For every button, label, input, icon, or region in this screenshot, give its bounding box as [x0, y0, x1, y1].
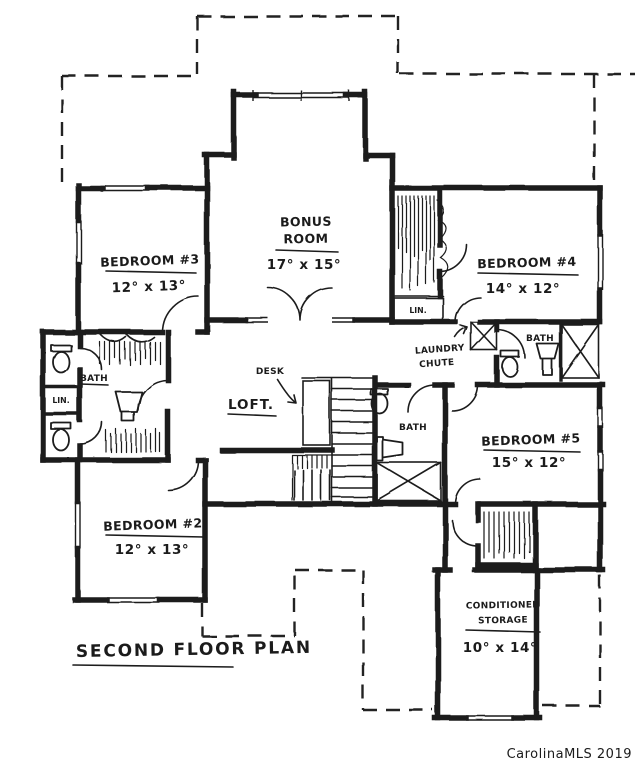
bedroom3-label: BEDROOM #3: [100, 251, 200, 269]
floor-plan-page: BEDROOM #3 12° x 13° BONUS ROOM 17° x 15…: [0, 0, 637, 768]
conditioned-storage-label-line1: CONDITIONED: [466, 600, 540, 611]
sink-vanity: [377, 437, 403, 461]
bedroom3-closet-hatch: [100, 342, 160, 365]
shower-xbox: [377, 463, 441, 501]
conditioned-storage-label-line2: STORAGE: [478, 616, 528, 627]
bonus-room-label-line1: BONUS: [280, 214, 332, 230]
sketch-geometry: [43, 16, 635, 720]
desk-arrow: [277, 379, 296, 403]
bath-hall-label: BATH: [526, 334, 554, 344]
toilet-bowl: [503, 358, 518, 377]
sink-pedestal: [116, 392, 142, 421]
tub-xbox: [562, 325, 599, 378]
toilet-tank: [51, 423, 71, 429]
conditioned-storage-dimensions: 10° x 14°: [463, 640, 538, 656]
bedroom3-dimensions: 12° x 13°: [111, 278, 186, 297]
roof-outline-dashed: [62, 16, 635, 710]
bedroom4-closet-hatch: [398, 196, 434, 290]
bath-jack-and-jill-label: BATH: [80, 374, 108, 384]
bedroom5-dimensions: 15° x 12°: [492, 455, 567, 471]
bedroom5-closet-hatch: [484, 512, 529, 558]
toilet-bowl: [53, 352, 69, 373]
laundry-chute-label-line2: CHUTE: [419, 358, 455, 370]
laundry-chute-label-line1: LAUNDRY: [415, 343, 466, 356]
laundry-chute-box: [471, 322, 497, 350]
loft-label: LOFT.: [228, 397, 274, 413]
toilet-tank: [51, 345, 71, 351]
laundry-chute-arrow: [455, 325, 467, 337]
sink-pedestal: [537, 344, 559, 375]
bath-center-label: BATH: [399, 423, 427, 433]
stair-treads-lower: [294, 470, 330, 500]
stair-treads-upper: [332, 389, 375, 497]
desk-surface: [303, 381, 330, 445]
plan-title: SECOND FLOOR PLAN: [76, 638, 312, 662]
staircase: [292, 378, 375, 504]
floor-plan-canvas: BEDROOM #3 12° x 13° BONUS ROOM 17° x 15…: [0, 0, 637, 768]
bonus-room-label-line2: ROOM: [283, 231, 328, 247]
bedroom4-label: BEDROOM #4: [477, 254, 577, 272]
bedroom5-label: BEDROOM #5: [481, 430, 581, 448]
bedroom4-dimensions: 14° x 12°: [486, 281, 561, 297]
bedroom2-dimensions: 12° x 13°: [115, 542, 190, 558]
watermark: CarolinaMLS 2019: [507, 747, 632, 762]
linen-left-label: LIN.: [52, 396, 69, 405]
bedroom2-label: BEDROOM #2: [103, 515, 203, 533]
bonus-room-dimensions: 17° x 15°: [267, 257, 342, 273]
desk-label: DESK: [256, 367, 285, 377]
linen-hall-label: LIN.: [409, 306, 426, 315]
bedroom2-closet-hatch: [106, 429, 160, 452]
toilet-tank: [501, 351, 519, 357]
toilet-bowl: [53, 430, 69, 451]
